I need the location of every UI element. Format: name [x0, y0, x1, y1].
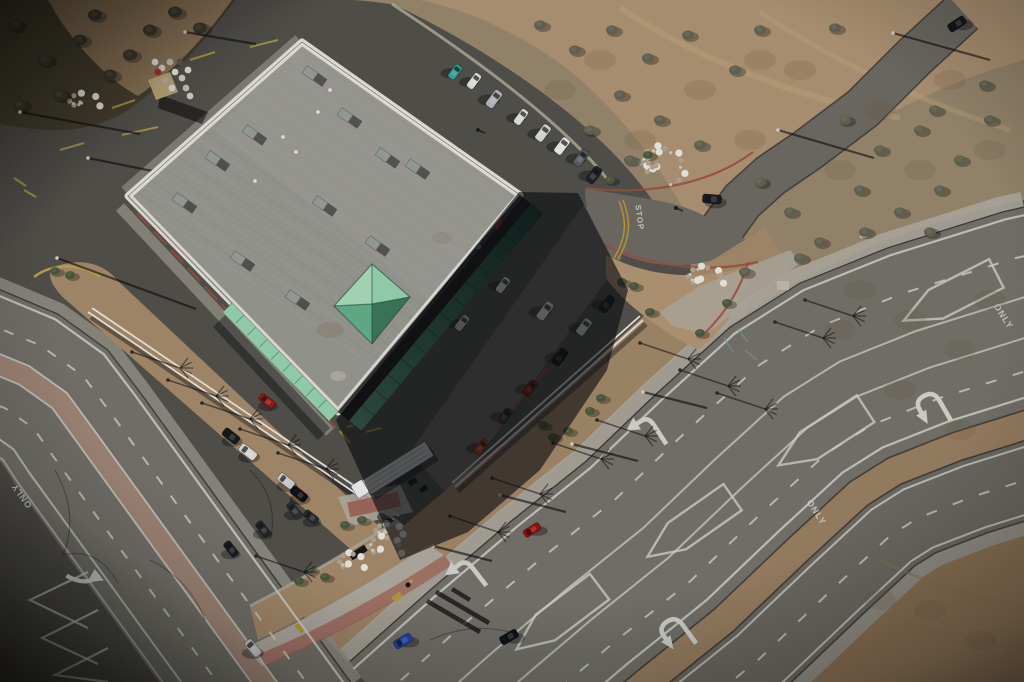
aerial-photo-viewport: ONLYONLYONLYSTOP [0, 0, 1024, 682]
scene-root: ONLYONLYONLYSTOP [0, 0, 1024, 682]
vignette [0, 0, 1024, 682]
aerial-scene: ONLYONLYONLYSTOP [0, 0, 1024, 682]
